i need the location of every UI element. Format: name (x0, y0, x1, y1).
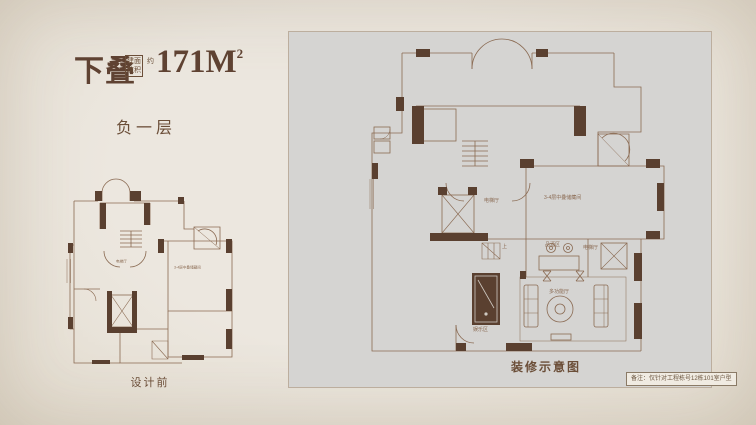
storage-room-label: 3-4层中叠储藏间 (544, 195, 581, 201)
multi-function-hall-label: 多功能厅 (549, 289, 569, 295)
wine-tasting-label: 品酒区 (545, 242, 560, 248)
sofa-left (524, 285, 538, 327)
main-elevator (442, 195, 474, 233)
elevator-hall-2-label: 电梯厅 (583, 245, 598, 251)
after-plan-drawing (296, 37, 668, 357)
entertainment-area-label: 娱乐区 (473, 327, 488, 333)
entry-door-arcs (472, 39, 532, 69)
after-design-plan: 电梯厅 3-4层中叠储藏间 品酒区 电梯厅 多功能厅 娱乐区 上 (296, 37, 668, 357)
area-box-column-2: 面积 (134, 57, 141, 75)
sofa-right (594, 285, 608, 327)
staircase-upper (462, 141, 488, 166)
elevator-shaft (111, 295, 133, 327)
wall-segments (68, 191, 232, 364)
area-value: 171M2 (156, 44, 243, 81)
round-table (547, 296, 573, 322)
before-elevator-hall-label: 电梯厅 (116, 259, 127, 264)
corner-bay (194, 227, 220, 249)
stair-up-label: 上 (502, 244, 507, 250)
plants (543, 271, 584, 281)
area-approx-label: 约 (147, 56, 154, 66)
before-plan-drawing (64, 171, 236, 369)
secondary-elevator (601, 243, 627, 269)
storage-room-outline (416, 106, 664, 239)
corner-stair-mark (152, 341, 168, 359)
before-design-plan: 电梯厅 3-4层中叠储藏间 (64, 171, 236, 369)
floor-level-label: 负一层 (116, 114, 176, 138)
before-storage-label: 3-4层中叠储藏间 (174, 265, 201, 270)
area-box-column-1: 建筑 (127, 57, 134, 75)
area-exponent: 2 (237, 46, 244, 61)
sideboard (551, 334, 571, 340)
storage-room-outline (160, 241, 232, 311)
area-number: 171M (156, 44, 237, 80)
after-plan-caption: 装修示意图 (511, 358, 581, 375)
floorplan-poster: 下叠 建筑 面积 约 171M2 负一层 (0, 0, 756, 425)
staircase-lower (482, 243, 500, 259)
billiard-table (472, 273, 500, 325)
disclaimer-note: 备注：仅针对工程栋号12栋101室户型 (626, 372, 737, 386)
area-label-box: 建筑 面积 (125, 55, 143, 77)
left-closets (374, 127, 390, 153)
elevator-hall-label: 电梯厅 (484, 198, 499, 204)
before-plan-caption: 设计前 (64, 374, 236, 390)
terrace-door-arc (456, 325, 474, 343)
renovation-panel: 电梯厅 3-4层中叠储藏间 品酒区 电梯厅 多功能厅 娱乐区 上 装修示意图 (288, 31, 712, 388)
upper-right-bay (598, 133, 630, 166)
entry-door-arcs (102, 179, 130, 193)
staircase (120, 231, 142, 247)
